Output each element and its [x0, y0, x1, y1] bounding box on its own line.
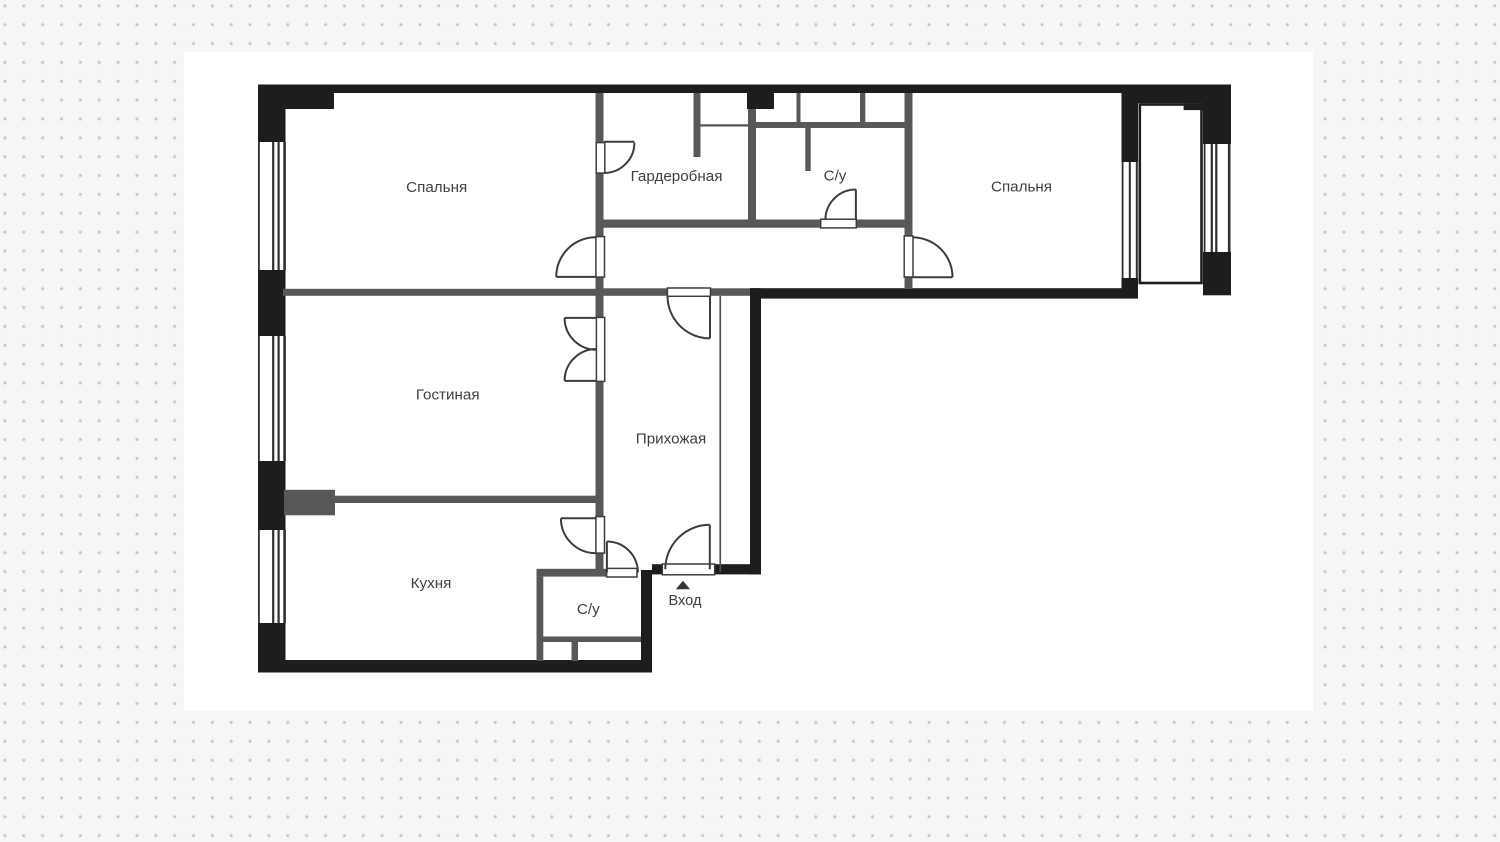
svg-text:Спальня: Спальня: [406, 179, 467, 196]
svg-text:Кухня: Кухня: [411, 575, 452, 592]
svg-text:Спальня: Спальня: [991, 179, 1052, 196]
svg-text:Гардеробная: Гардеробная: [631, 168, 723, 185]
svg-text:Гостиная: Гостиная: [416, 387, 480, 404]
svg-text:Прихожая: Прихожая: [636, 431, 706, 448]
svg-text:Вход: Вход: [668, 593, 701, 609]
svg-text:С/у: С/у: [577, 601, 600, 618]
svg-text:С/у: С/у: [824, 168, 847, 185]
